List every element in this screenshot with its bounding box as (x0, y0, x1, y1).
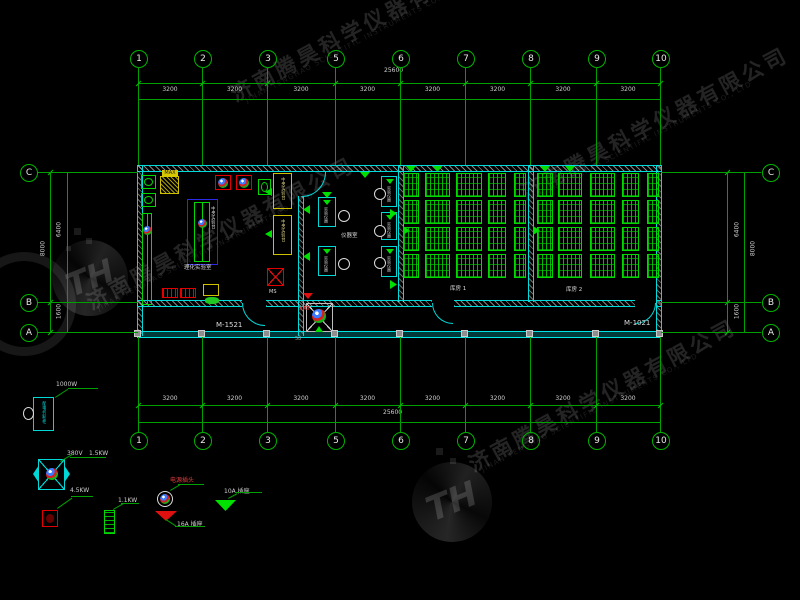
leader-line (178, 484, 204, 485)
watermark-pixel (74, 228, 81, 235)
bay-dim-label: 3200 (290, 86, 312, 93)
wall-note: 58 (295, 336, 301, 342)
room-label-instrument: 仪器室 (341, 231, 358, 239)
storage-rack (488, 227, 506, 251)
leader-line (121, 503, 139, 504)
sink-bowl-icon (144, 178, 153, 186)
storage-rack (514, 254, 526, 278)
central-bench-label: 中央实验台 (210, 206, 215, 262)
axis-bubble-top: 2 (194, 50, 212, 68)
cabinet-label: 配电控制柜 (41, 401, 46, 429)
bay-dim-label: 3200 (487, 395, 509, 402)
storage-rack (590, 227, 615, 251)
room-label-lab: 理化实验室 (184, 263, 212, 271)
axis-bubble-bottom: 1 (130, 432, 148, 450)
radiator (180, 288, 196, 298)
leader-line (70, 457, 106, 458)
wall-partition-1 (298, 196, 304, 336)
row-grid-line (37, 302, 138, 303)
axis-bubble-left: A (20, 324, 38, 342)
row-grid-line (37, 332, 138, 333)
wall-post (396, 330, 403, 337)
bay-dim-label: 3200 (617, 86, 639, 93)
instrument-label: 实验仪器 (387, 186, 391, 206)
lamp-icon (360, 172, 370, 178)
equipment-sphere-icon (218, 178, 228, 188)
axis-bubble-right: C (762, 164, 780, 182)
lamp-icon (323, 200, 331, 205)
storage-rack (537, 200, 553, 224)
axis-bubble-bottom: 10 (652, 432, 670, 450)
storage-rack (647, 227, 659, 251)
stool (338, 258, 350, 270)
bay-dim-label: 3200 (224, 395, 246, 402)
door-label-m1021: M-1021 (624, 319, 650, 327)
wall-bench-label: 中央实验台 (280, 177, 285, 208)
storage-rack (558, 254, 582, 278)
instrument-bench: 实验仪器 (318, 197, 336, 227)
storage-rack (622, 173, 639, 197)
dim-line (138, 422, 660, 423)
leader-line (170, 485, 180, 491)
door-arc-middle (432, 303, 453, 324)
storage-rack (558, 173, 582, 197)
storage-rack (425, 227, 450, 251)
watermark-company-en: JINAN TENGHAO SCIENTIFIC INSTRUMENTS CO.… (480, 352, 699, 474)
bay-dim-label: 3200 (357, 86, 379, 93)
axis-bubble-top: 3 (259, 50, 277, 68)
storage-rack (537, 254, 553, 278)
room-label-store1: 库房 1 (450, 284, 466, 292)
wall-post (461, 330, 468, 337)
axis-bubble-top: 5 (327, 50, 345, 68)
storage-rack (456, 254, 482, 278)
equipment-sphere-icon (198, 219, 207, 228)
radiator (162, 288, 178, 298)
floor-sink (267, 268, 284, 286)
dim-line (138, 99, 660, 100)
heater-core-icon (46, 514, 54, 523)
axis-bubble-top: 10 (652, 50, 670, 68)
axis-bubble-top: 9 (588, 50, 606, 68)
cad-drawing-canvas: TH 济南腾昊科学仪器有限公司 JINAN TENGHAO SCIENTIFIC… (0, 0, 800, 600)
room-label-store2: 库房 2 (566, 285, 582, 293)
storage-rack (488, 200, 506, 224)
storage-rack (514, 200, 526, 224)
dim-right-cb: 6400 (734, 215, 741, 245)
dim-line-vertical (744, 172, 745, 332)
legend-cabinet-power: 1000W (56, 381, 77, 388)
storage-rack (403, 254, 419, 278)
axis-grid-line (267, 336, 268, 432)
equipment-sphere-icon (160, 494, 170, 504)
row-grid-line (661, 172, 761, 173)
socket-icon (303, 252, 310, 261)
axis-bubble-top: 8 (522, 50, 540, 68)
axis-bubble-bottom: 9 (588, 432, 606, 450)
bay-dim-label: 3200 (617, 395, 639, 402)
leader-line (57, 498, 72, 509)
entrance-equipment-label: XAT (299, 306, 310, 312)
fume-hood-tag: MAX (162, 170, 178, 177)
storage-rack (622, 227, 639, 251)
storage-rack (403, 173, 419, 197)
axis-bubble-bottom: 7 (457, 432, 475, 450)
storage-rack (488, 254, 506, 278)
wall-corridor-b (266, 300, 432, 307)
fume-hood (160, 176, 179, 194)
axis-bubble-right: A (762, 324, 780, 342)
wall-post (526, 330, 533, 337)
wall-bench: 中央实验台 (273, 173, 292, 209)
equipment-sphere-icon (143, 226, 152, 235)
storage-rack (403, 227, 419, 251)
instrument-label: 实验仪器 (324, 207, 328, 227)
dim-line-vertical (50, 172, 51, 332)
axis-grid-line (465, 336, 466, 432)
legend-plug-label: 电源插头 (170, 475, 194, 484)
storage-rack (558, 200, 582, 224)
storage-rack (514, 173, 526, 197)
legend-pump-symbol (104, 510, 115, 534)
wall-post (331, 330, 338, 337)
dim-line-vertical (67, 172, 68, 332)
bay-dim-label: 3200 (224, 86, 246, 93)
leader-line (71, 496, 93, 497)
watermark-pixel (86, 238, 92, 244)
instrument-label: 实验仪器 (324, 256, 328, 276)
instrument-label: 实验仪器 (387, 222, 391, 240)
stool (374, 225, 386, 237)
equipment-blob (205, 297, 219, 304)
wall-corridor-a (137, 300, 242, 307)
storage-rack (425, 173, 450, 197)
socket-icon (303, 205, 310, 214)
storage-rack (425, 200, 450, 224)
wall-post (263, 330, 270, 337)
storage-rack (558, 227, 582, 251)
instrument-bench: 实验仪器 (318, 246, 336, 276)
storage-rack (537, 173, 553, 197)
stool (374, 188, 386, 200)
bay-dim-label: 3200 (357, 395, 379, 402)
storage-rack (590, 173, 615, 197)
lamp-icon (386, 249, 394, 254)
equipment-box (203, 284, 219, 296)
legend-heater-symbol (42, 510, 58, 527)
cabinet-dial-icon (23, 407, 34, 420)
axis-bubble-bottom: 2 (194, 432, 212, 450)
dim-line-vertical (727, 172, 728, 332)
watermark-pixel (450, 458, 456, 464)
axis-grid-line (596, 336, 597, 432)
row-grid-line (661, 302, 761, 303)
socket-16a-icon (303, 293, 313, 299)
storage-rack (590, 254, 615, 278)
equipment-sphere-icon (46, 468, 58, 480)
storage-rack (456, 200, 482, 224)
instrument-label: 实验仪器 (387, 256, 391, 276)
dim-left-total: 8000 (40, 234, 47, 264)
legend-heater-power: 4.5KW (70, 487, 89, 494)
equipment-sphere-icon (312, 309, 326, 323)
bay-dim-label: 3200 (552, 86, 574, 93)
sink-unit (141, 175, 156, 189)
sink-bowl-icon (144, 196, 153, 204)
storage-rack (425, 254, 450, 278)
wall-corridor-c (454, 300, 635, 307)
storage-rack (622, 200, 639, 224)
watermark-pixel (436, 448, 443, 455)
storage-rack (514, 227, 526, 251)
bay-dim-label: 3200 (552, 395, 574, 402)
axis-bubble-bottom: 6 (392, 432, 410, 450)
stool (374, 257, 386, 269)
axis-grid-line (202, 336, 203, 432)
wall-post (198, 330, 205, 337)
axis-grid-line (660, 336, 661, 432)
axis-bubble-bottom: 5 (327, 432, 345, 450)
door-label-m1521: M-1521 (216, 321, 242, 329)
lamp-icon (386, 179, 394, 184)
axis-bubble-left: B (20, 294, 38, 312)
socket-icon (390, 280, 397, 289)
axis-bubble-right: B (762, 294, 780, 312)
bay-dim-label: 3200 (159, 86, 181, 93)
leader-line (236, 492, 262, 493)
dim-right-ba: 1600 (734, 297, 741, 327)
row-grid-line (37, 172, 138, 173)
mixer-wing-icon (33, 465, 39, 483)
equipment-sphere-icon (239, 178, 249, 188)
legend-mixer-power: 1.5KW (89, 450, 108, 457)
storage-rack (537, 227, 553, 251)
leader-line (68, 388, 98, 389)
wall-bench-label: 中央实验台 (280, 219, 285, 253)
furnace-unit (236, 175, 252, 190)
dim-left-ba: 1600 (56, 297, 63, 327)
storage-rack (403, 200, 419, 224)
storage-rack (488, 173, 506, 197)
axis-bubble-top: 6 (392, 50, 410, 68)
storage-rack (456, 227, 482, 251)
central-bench (194, 202, 210, 262)
legend-distribution-cabinet: 配电控制柜 (33, 397, 54, 431)
storage-rack (647, 173, 659, 197)
lamp-icon (323, 249, 331, 254)
axis-grid-line (335, 336, 336, 432)
bay-dim-label: 3200 (159, 395, 181, 402)
storage-rack (647, 254, 659, 278)
stool (338, 210, 350, 222)
mixer-wing-icon (64, 465, 70, 483)
socket-icon (265, 230, 272, 238)
sink-unit (141, 193, 156, 207)
furnace-unit (215, 175, 231, 190)
leader-line (55, 389, 68, 398)
leader-line (175, 526, 205, 527)
fixture-icon (261, 182, 268, 192)
bay-dim-label: 3200 (422, 395, 444, 402)
leader-line (113, 503, 124, 510)
axis-bubble-bottom: 8 (522, 432, 540, 450)
wall-bench: 中央实验台 (273, 215, 292, 255)
wall-post (592, 330, 599, 337)
axis-bubble-bottom: 3 (259, 432, 277, 450)
row-grid-line (661, 332, 761, 333)
door-arc-m1521 (242, 303, 265, 326)
storage-rack (622, 254, 639, 278)
axis-bubble-left: C (20, 164, 38, 182)
dim-left-cb: 6400 (56, 215, 63, 245)
storage-rack (647, 200, 659, 224)
floor-sink-label: MS (269, 289, 277, 295)
axis-grid-line (530, 336, 531, 432)
bay-dim-label: 3200 (290, 395, 312, 402)
storage-rack (590, 200, 615, 224)
storage-rack (456, 173, 482, 197)
bay-dim-label: 3200 (422, 86, 444, 93)
axis-grid-line (400, 336, 401, 432)
axis-bubble-top: 7 (457, 50, 475, 68)
axis-bubble-top: 1 (130, 50, 148, 68)
axis-grid-line (138, 336, 139, 432)
socket-10a-icon (215, 500, 236, 511)
bay-dim-label: 3200 (487, 86, 509, 93)
dim-right-total: 8000 (750, 234, 757, 264)
